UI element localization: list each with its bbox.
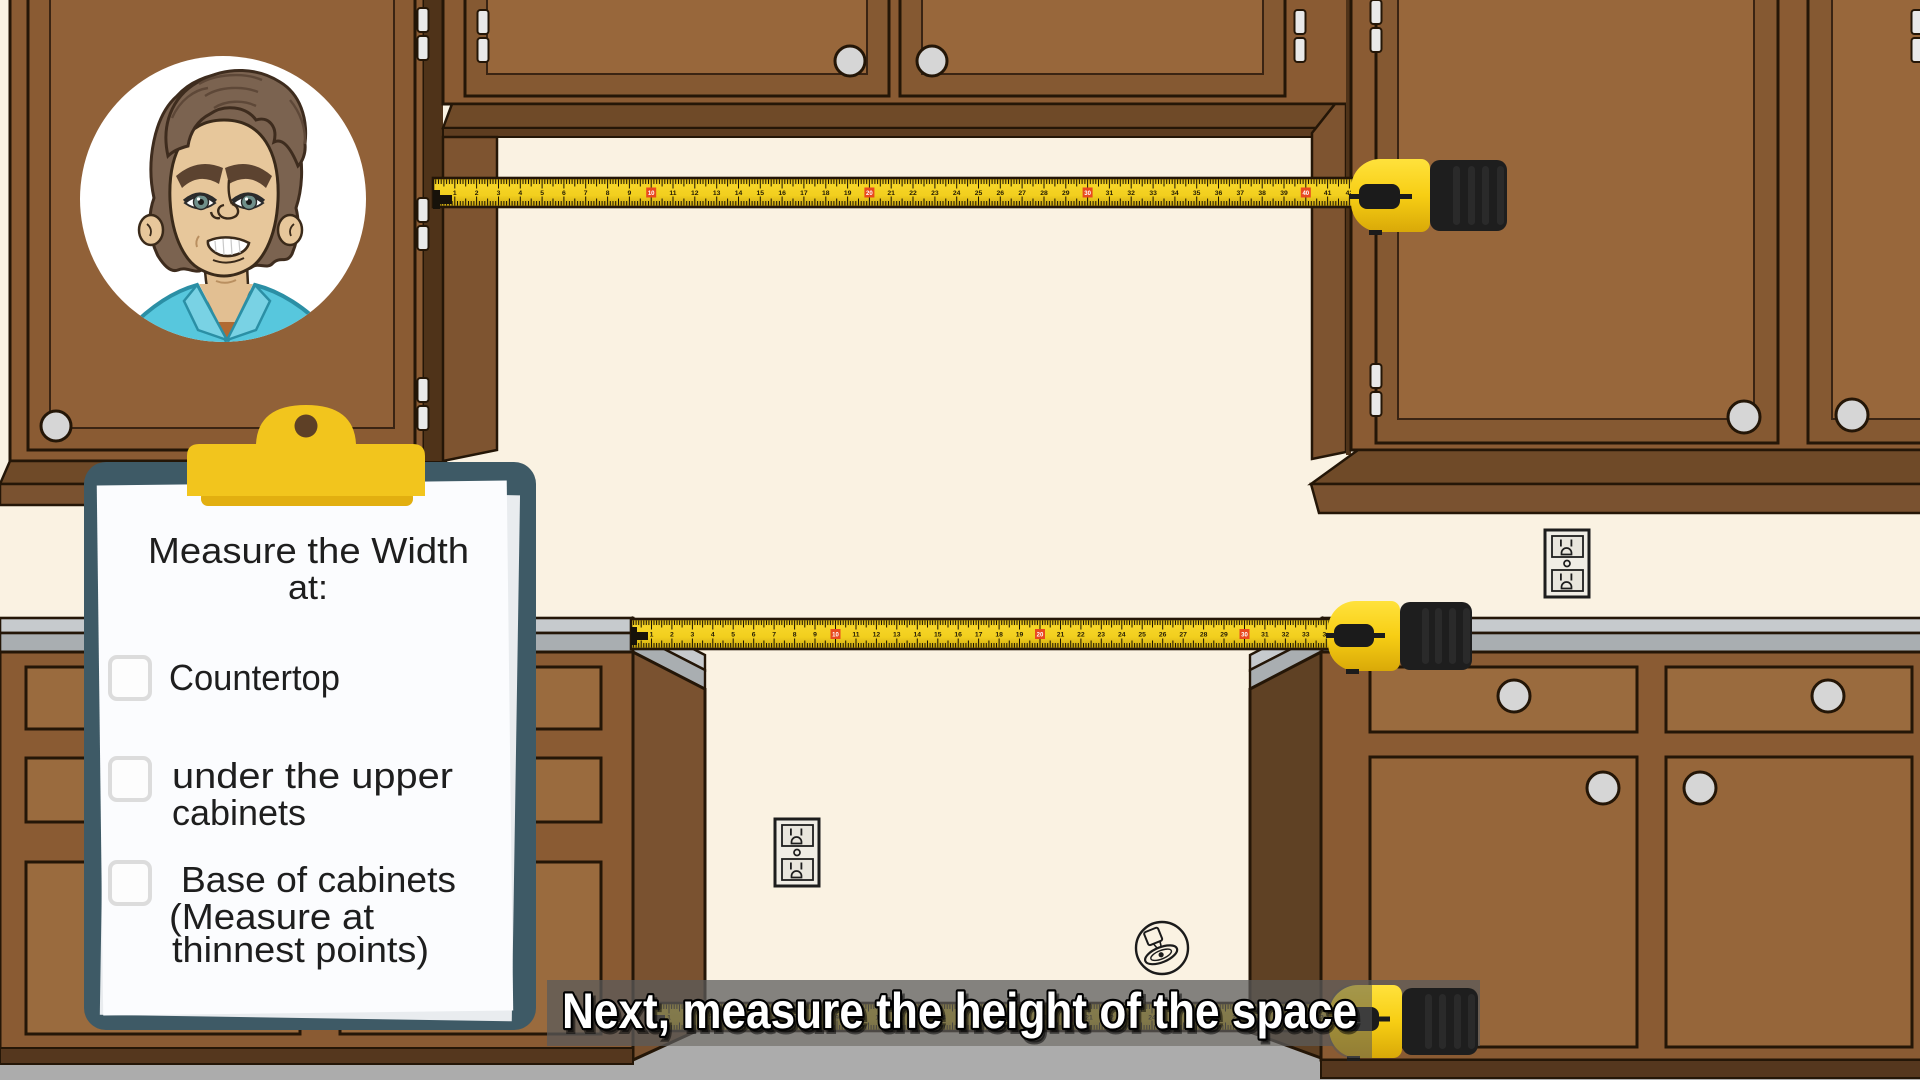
svg-text:5: 5 xyxy=(731,632,735,639)
svg-text:20: 20 xyxy=(1037,632,1044,638)
svg-text:41: 41 xyxy=(1324,190,1332,197)
svg-text:25: 25 xyxy=(1138,632,1146,639)
svg-text:8: 8 xyxy=(793,632,797,639)
svg-text:33: 33 xyxy=(1149,190,1157,197)
svg-text:17: 17 xyxy=(800,190,808,197)
svg-text:thinnest points): thinnest points) xyxy=(172,929,429,970)
svg-text:34: 34 xyxy=(1171,190,1179,197)
svg-text:4: 4 xyxy=(711,632,715,639)
svg-text:28: 28 xyxy=(1200,632,1208,639)
svg-text:6: 6 xyxy=(752,632,756,639)
svg-text:22: 22 xyxy=(1077,632,1085,639)
svg-text:13: 13 xyxy=(893,632,901,639)
svg-text:37: 37 xyxy=(1237,190,1245,197)
svg-text:17: 17 xyxy=(975,632,983,639)
svg-text:cabinets: cabinets xyxy=(172,792,306,833)
svg-text:18: 18 xyxy=(822,190,830,197)
svg-text:3: 3 xyxy=(497,190,501,197)
svg-text:24: 24 xyxy=(953,190,961,197)
svg-text:29: 29 xyxy=(1062,190,1070,197)
svg-text:2: 2 xyxy=(475,190,479,197)
svg-text:39: 39 xyxy=(1280,190,1288,197)
svg-text:6: 6 xyxy=(562,190,566,197)
svg-text:18: 18 xyxy=(995,632,1003,639)
svg-text:12: 12 xyxy=(873,632,881,639)
svg-text:38: 38 xyxy=(1258,190,1266,197)
svg-text:13: 13 xyxy=(713,190,721,197)
svg-text:26: 26 xyxy=(1159,632,1167,639)
svg-text:Next, measure the height of th: Next, measure the height of the space xyxy=(562,983,1357,1039)
svg-text:35: 35 xyxy=(1193,190,1201,197)
svg-text:30: 30 xyxy=(1084,191,1091,197)
svg-text:23: 23 xyxy=(1098,632,1106,639)
svg-text:36: 36 xyxy=(1215,190,1223,197)
svg-text:8: 8 xyxy=(606,190,610,197)
svg-text:12: 12 xyxy=(691,190,699,197)
svg-text:24: 24 xyxy=(1118,632,1126,639)
svg-text:4: 4 xyxy=(518,190,522,197)
svg-text:1: 1 xyxy=(650,632,654,639)
svg-text:25: 25 xyxy=(975,190,983,197)
svg-text:at:: at: xyxy=(288,569,328,607)
svg-text:27: 27 xyxy=(1018,190,1026,197)
svg-text:20: 20 xyxy=(866,191,873,197)
svg-text:28: 28 xyxy=(1040,190,1048,197)
svg-text:19: 19 xyxy=(844,190,852,197)
svg-text:29: 29 xyxy=(1220,632,1228,639)
svg-text:26: 26 xyxy=(997,190,1005,197)
svg-text:21: 21 xyxy=(887,190,895,197)
svg-text:7: 7 xyxy=(772,632,776,639)
svg-text:2: 2 xyxy=(670,632,674,639)
svg-text:27: 27 xyxy=(1179,632,1187,639)
svg-text:11: 11 xyxy=(852,632,859,639)
svg-text:16: 16 xyxy=(954,632,962,639)
svg-text:19: 19 xyxy=(1016,632,1024,639)
svg-text:1: 1 xyxy=(453,190,457,197)
svg-text:15: 15 xyxy=(934,632,942,639)
svg-text:32: 32 xyxy=(1282,632,1290,639)
svg-text:30: 30 xyxy=(1241,632,1248,638)
svg-text:10: 10 xyxy=(648,191,655,197)
svg-text:9: 9 xyxy=(628,190,632,197)
svg-text:under the upper: under the upper xyxy=(172,755,453,796)
svg-text:40: 40 xyxy=(1302,191,1309,197)
svg-text:23: 23 xyxy=(931,190,939,197)
svg-text:11: 11 xyxy=(669,190,676,197)
svg-text:16: 16 xyxy=(778,190,786,197)
svg-text:21: 21 xyxy=(1057,632,1065,639)
svg-text:32: 32 xyxy=(1127,190,1135,197)
svg-text:Measure the Width: Measure the Width xyxy=(148,530,469,571)
svg-text:3: 3 xyxy=(691,632,695,639)
svg-text:33: 33 xyxy=(1302,632,1310,639)
svg-text:10: 10 xyxy=(832,632,839,638)
svg-text:15: 15 xyxy=(757,190,765,197)
svg-text:5: 5 xyxy=(540,190,544,197)
svg-text:31: 31 xyxy=(1261,632,1269,639)
svg-text:Countertop: Countertop xyxy=(169,657,340,698)
svg-text:14: 14 xyxy=(914,632,922,639)
svg-text:9: 9 xyxy=(813,632,817,639)
svg-text:14: 14 xyxy=(735,190,743,197)
svg-text:7: 7 xyxy=(584,190,588,197)
svg-text:31: 31 xyxy=(1106,190,1114,197)
svg-text:22: 22 xyxy=(909,190,917,197)
svg-text:Base of cabinets: Base of cabinets xyxy=(181,859,456,900)
